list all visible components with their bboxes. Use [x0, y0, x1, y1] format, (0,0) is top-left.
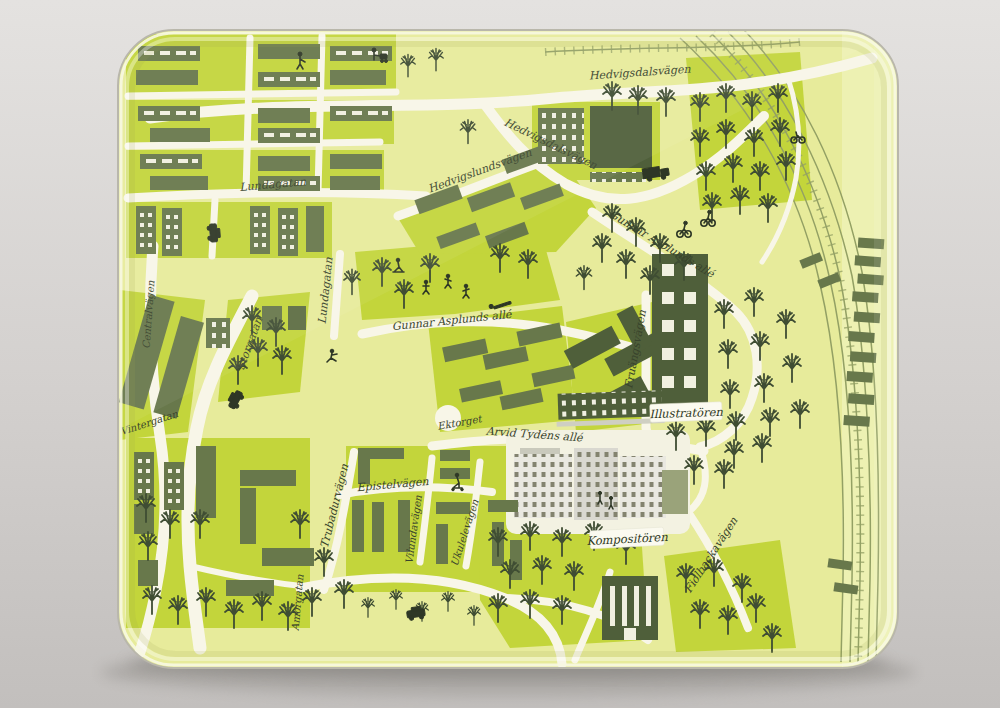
white-hospital-complex	[514, 448, 688, 520]
striped-hall-building	[602, 576, 658, 640]
badge-text-illustratoren: Illustratören	[649, 405, 723, 422]
photo-scene: Hedvigsdalsvägen Hedvigsdalsvägen Lundag…	[0, 0, 1000, 708]
block-label-illustratoren: Illustratören	[649, 402, 724, 423]
tray-photo: Hedvigsdalsvägen Hedvigsdalsvägen Lundag…	[0, 0, 1000, 708]
tray-map-print: Hedvigsdalsvägen Hedvigsdalsvägen Lundag…	[118, 30, 898, 668]
